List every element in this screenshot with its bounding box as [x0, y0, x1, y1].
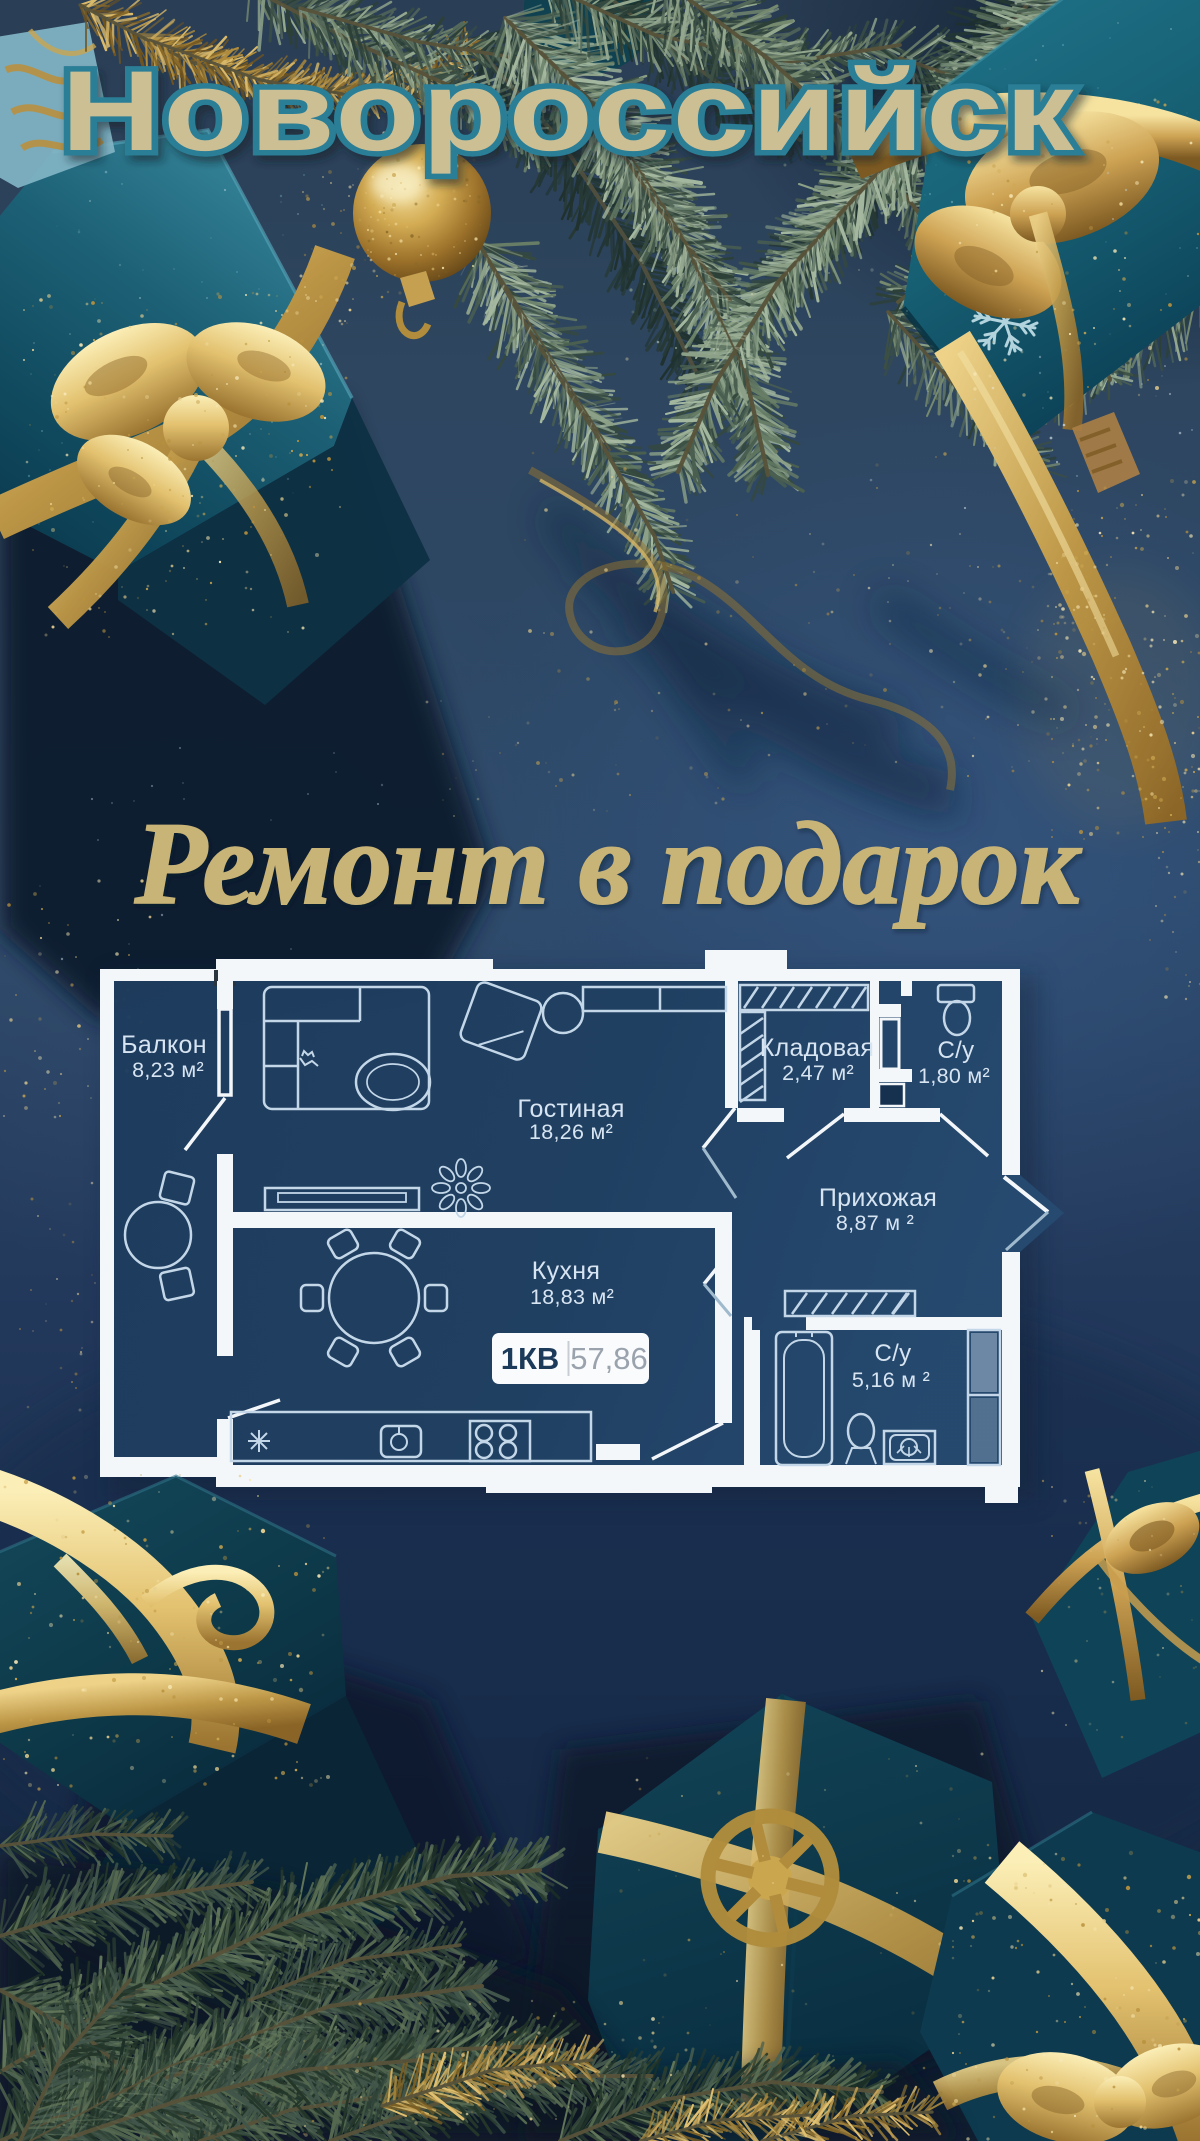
svg-text:18,83 м²: 18,83 м²	[530, 1285, 614, 1309]
svg-text:Кухня: Кухня	[532, 1257, 600, 1285]
svg-text:5,16 м ²: 5,16 м ²	[852, 1368, 930, 1392]
svg-text:Прихожая: Прихожая	[819, 1184, 937, 1212]
svg-text:С/у: С/у	[938, 1037, 975, 1064]
svg-text:2,47 м²: 2,47 м²	[782, 1061, 854, 1085]
svg-text:С/у: С/у	[875, 1340, 912, 1367]
svg-text:8,87 м ²: 8,87 м ²	[836, 1211, 914, 1235]
svg-text:Кладовая: Кладовая	[760, 1034, 874, 1062]
svg-text:57,86: 57,86	[570, 1341, 648, 1376]
svg-text:18,26 м²: 18,26 м²	[529, 1120, 613, 1144]
svg-text:8,23 м²: 8,23 м²	[132, 1058, 204, 1082]
svg-text:Балкон: Балкон	[121, 1031, 207, 1059]
svg-text:1,80 м²: 1,80 м²	[918, 1064, 990, 1088]
svg-text:1КВ: 1КВ	[501, 1341, 560, 1376]
svg-text:Ремонт в подарок: Ремонт в подарок	[134, 798, 1083, 929]
svg-text:Гостиная: Гостиная	[517, 1095, 624, 1123]
svg-text:Новороссийск: Новороссийск	[61, 46, 1076, 174]
